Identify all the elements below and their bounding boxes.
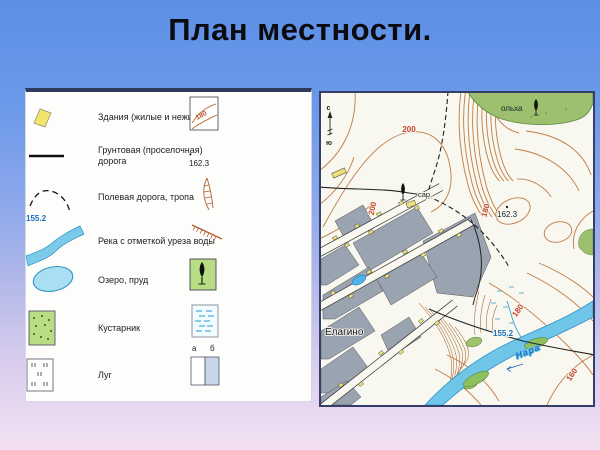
topographic-map: с ю 200 200 180 180 160 162.3 155.2 сар.… <box>319 91 595 407</box>
ravine-icon <box>196 176 224 214</box>
garden-b-label: б <box>210 344 215 353</box>
height-label-162: 162.3 <box>497 210 518 219</box>
height-mark-value: 162.3 <box>189 159 209 168</box>
swamp-icon <box>191 304 221 340</box>
water-edge-dot <box>526 341 529 344</box>
cliff-icon <box>189 218 227 248</box>
forest-icon <box>189 258 218 292</box>
height-point-dot <box>506 206 508 208</box>
legend-label-field-road: Полевая дорога, тропа <box>98 192 194 203</box>
legend-label-meadow: Луг <box>98 370 112 381</box>
river-icon <box>26 224 90 266</box>
contour-label-200-top: 200 <box>402 125 416 134</box>
field-road-icon <box>28 182 90 214</box>
compass-south-label: ю <box>326 140 332 147</box>
legend-panel: Здания (жилые и нежилые) Грунтовая (прос… <box>25 88 312 402</box>
shrub-icon <box>28 310 58 348</box>
page-title: План местности. <box>0 12 600 48</box>
water-label-155: 155.2 <box>493 329 514 338</box>
river-mark-label: 155.2 <box>26 214 46 223</box>
dirt-road-icon <box>28 150 88 170</box>
alder-label: ольха <box>501 104 523 113</box>
lake-icon <box>28 262 84 298</box>
map-canvas: с ю 200 200 180 180 160 162.3 155.2 сар.… <box>321 93 593 405</box>
building-icon <box>26 104 86 132</box>
height-mark: • 162.3 <box>189 150 209 168</box>
barn-label: сар. <box>418 190 432 199</box>
field-garden-icon <box>190 356 222 389</box>
slide-background: План местности. Здания (жилые и нежилые)… <box>0 0 600 450</box>
compass-north-label: с <box>327 105 331 112</box>
contours-icon: 180 <box>189 96 221 132</box>
legend-label-lake: Озеро, пруд <box>98 275 148 286</box>
legend-label-shrub: Кустарник <box>98 323 140 334</box>
village-label: Елагино <box>325 327 364 338</box>
meadow-icon <box>26 358 56 394</box>
field-a-label: а <box>192 344 196 353</box>
